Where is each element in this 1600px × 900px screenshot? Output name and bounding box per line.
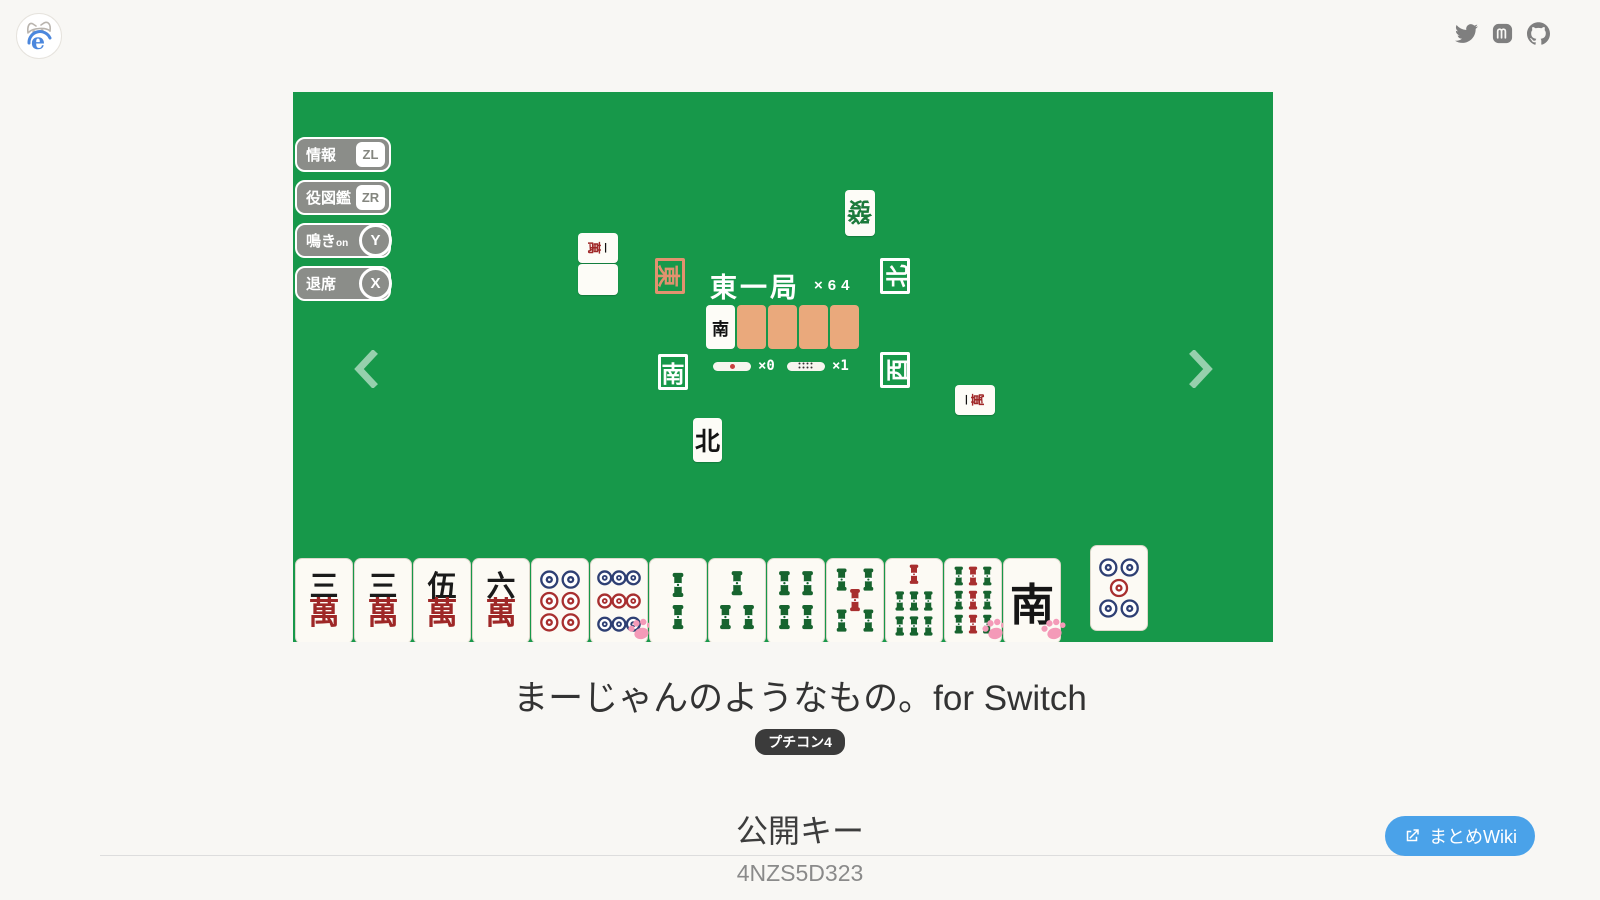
- keycap-y-icon: Y: [359, 224, 392, 257]
- game-button-label: 鳴きon: [306, 230, 348, 251]
- mastodon-icon[interactable]: [1491, 22, 1514, 45]
- face-down-tile: [830, 305, 859, 349]
- game-button-label: 役図鑑: [306, 187, 351, 208]
- hand-tile-sou-7[interactable]: [885, 558, 943, 642]
- game-button-x[interactable]: 退席X: [295, 266, 391, 301]
- game-button-label: 退席: [306, 273, 336, 294]
- svg-text:e: e: [31, 29, 45, 55]
- hundred-point-stick: ×1: [787, 358, 849, 374]
- face-down-tile: [737, 305, 766, 349]
- github-icon[interactable]: [1527, 22, 1550, 45]
- wiki-button[interactable]: まとめWiki: [1385, 816, 1535, 856]
- hand-tile-sou-5[interactable]: [826, 558, 884, 642]
- discard-tile-man-rotated: 一萬: [955, 385, 995, 415]
- hand-tile-pin-9[interactable]: [590, 558, 648, 642]
- hand-tile-sou-2[interactable]: [649, 558, 707, 642]
- discard-tile-wind: 北: [693, 418, 722, 462]
- seat-wind-3: 西: [880, 352, 910, 388]
- public-key-heading: 公開キー: [0, 806, 1600, 852]
- game-button-zr[interactable]: 役図鑑ZR: [295, 180, 391, 215]
- hand-tile-sou-9[interactable]: [944, 558, 1002, 642]
- page-title: まーじゃんのようなもの。for Switch: [0, 670, 1600, 721]
- hand-tile-sou-4[interactable]: [767, 558, 825, 642]
- seat-wind-2: 北: [880, 258, 910, 294]
- wiki-button-label: まとめWiki: [1429, 823, 1517, 849]
- chevron-left-icon: [353, 350, 379, 388]
- hand-tile-pin-6[interactable]: [531, 558, 589, 642]
- keycap-zl-icon: ZL: [356, 142, 385, 167]
- discard-tile-green-dragon: 發: [845, 190, 875, 236]
- twitter-icon[interactable]: [1455, 22, 1478, 45]
- dora-indicator-row: 南: [706, 305, 859, 349]
- chevron-right-icon: [1188, 350, 1214, 388]
- hand-tile-man-六[interactable]: 六萬: [472, 558, 530, 642]
- external-link-icon: [1403, 827, 1421, 845]
- hand-tile-南[interactable]: 南: [1003, 558, 1061, 642]
- keycap-zr-icon: ZR: [356, 185, 385, 210]
- hand-tile-man-三[interactable]: 三萬: [354, 558, 412, 642]
- platform-badge-wrap: プチコン4: [0, 729, 1600, 755]
- carousel-prev-button[interactable]: [353, 350, 379, 388]
- game-button-zl[interactable]: 情報ZL: [295, 137, 391, 172]
- discard-tile-man-rotated: 一萬: [578, 233, 618, 263]
- discard-tile-blank: [578, 264, 618, 295]
- keycap-x-icon: X: [359, 267, 392, 300]
- thousand-point-stick: ×0: [713, 358, 775, 374]
- seat-wind-1: 南: [658, 354, 688, 390]
- hand-tile-man-三[interactable]: 三萬: [295, 558, 353, 642]
- carousel-next-button[interactable]: [1188, 350, 1214, 388]
- game-button-label: 情報: [306, 144, 336, 165]
- round-label: 東一局: [710, 266, 800, 305]
- dora-indicator-tile: 南: [706, 305, 735, 349]
- face-down-tile: [768, 305, 797, 349]
- player-hand: 三萬三萬伍萬六萬南: [295, 558, 1062, 642]
- social-links: [1455, 22, 1550, 45]
- game-screenshot: 情報ZL役図鑑ZR鳴きonY退席X 東一局 ×64 東南北西 南 ×0×1 發一…: [293, 92, 1273, 642]
- seat-wind-0: 東: [655, 258, 685, 294]
- platform-badge: プチコン4: [755, 729, 845, 755]
- face-down-tile: [799, 305, 828, 349]
- hand-tile-man-伍[interactable]: 伍萬: [413, 558, 471, 642]
- drawn-tile-pin-5[interactable]: [1090, 545, 1148, 631]
- game-button-y[interactable]: 鳴きonY: [295, 223, 391, 258]
- hand-tile-sou-3[interactable]: [708, 558, 766, 642]
- stick-count: ×0: [758, 358, 775, 374]
- stick-count: ×1: [832, 358, 849, 374]
- divider: [100, 855, 1500, 856]
- public-key-value: 4NZS5D323: [0, 860, 1600, 887]
- cat-logo-icon: e: [19, 16, 59, 56]
- round-multiplier: ×64: [814, 277, 854, 294]
- site-logo[interactable]: e: [16, 13, 62, 59]
